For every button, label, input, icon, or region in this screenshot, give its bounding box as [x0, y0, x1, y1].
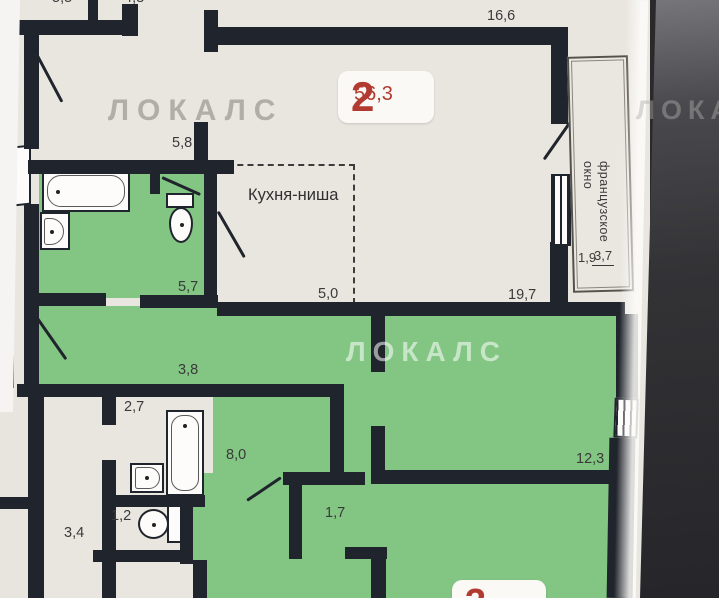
wall	[289, 485, 302, 559]
wall	[551, 27, 568, 124]
wall	[88, 0, 98, 22]
apartment-badge[interactable]: 3	[452, 580, 546, 598]
bathtub-icon	[166, 410, 204, 496]
room-closet-green	[193, 473, 373, 598]
wall	[17, 384, 334, 397]
dim-label: 12,3	[576, 452, 604, 467]
kitchen-niche-outline	[217, 164, 355, 304]
dim-label: 5,8	[172, 136, 192, 151]
dim-label: 8,0	[226, 448, 246, 463]
dim-label: 2,7	[124, 400, 144, 415]
wall	[150, 170, 160, 194]
wall	[194, 122, 208, 164]
floorplan-photo: французское окно 3,7 1,9 5,5 4,8 16,6 5,…	[0, 0, 719, 598]
wall	[0, 497, 30, 509]
apartment-number: 3	[465, 584, 486, 598]
kitchen-niche-label: Кухня-ниша	[248, 186, 338, 205]
dim-label: 5,7	[178, 280, 198, 295]
wall	[102, 460, 116, 598]
watermark: ЛОКАЛС	[108, 96, 283, 126]
dim-label: 3,8	[178, 363, 198, 378]
sink-icon	[130, 463, 164, 493]
wall	[204, 172, 217, 304]
dim-label: 16,6	[487, 9, 515, 24]
dim-label: 1,7	[325, 506, 345, 521]
wall	[283, 472, 365, 485]
apartment-area: 56,3	[354, 84, 393, 104]
dim-label: 5,5	[52, 0, 72, 6]
dim-label: 5,0	[318, 287, 338, 302]
toilet-icon	[138, 509, 169, 539]
toilet-tank-icon	[166, 193, 194, 208]
dim-label: 19,7	[508, 288, 536, 303]
wall	[140, 295, 218, 308]
french-window-label: французское окно	[576, 111, 612, 211]
wall	[371, 470, 619, 484]
dim-label: 3,4	[64, 526, 84, 541]
sink-icon	[40, 212, 70, 250]
wall	[330, 384, 344, 474]
wall	[102, 397, 116, 425]
watermark: ЛОКАЛС	[636, 97, 719, 124]
wall	[28, 396, 44, 598]
wall	[113, 495, 205, 507]
wall	[371, 547, 386, 598]
wall	[205, 27, 567, 45]
bathtub-icon	[42, 170, 130, 212]
apartment-badge[interactable]: 2 56,3	[338, 71, 434, 123]
wall	[122, 4, 138, 36]
french-window-symbol	[551, 174, 571, 246]
dim-label: 4,8	[124, 0, 144, 6]
watermark: ЛОКАЛС	[346, 338, 507, 366]
wall	[30, 293, 106, 306]
wall	[93, 550, 189, 562]
wall	[217, 302, 625, 316]
wall	[193, 560, 207, 598]
dim-label: 1,2	[111, 509, 131, 524]
